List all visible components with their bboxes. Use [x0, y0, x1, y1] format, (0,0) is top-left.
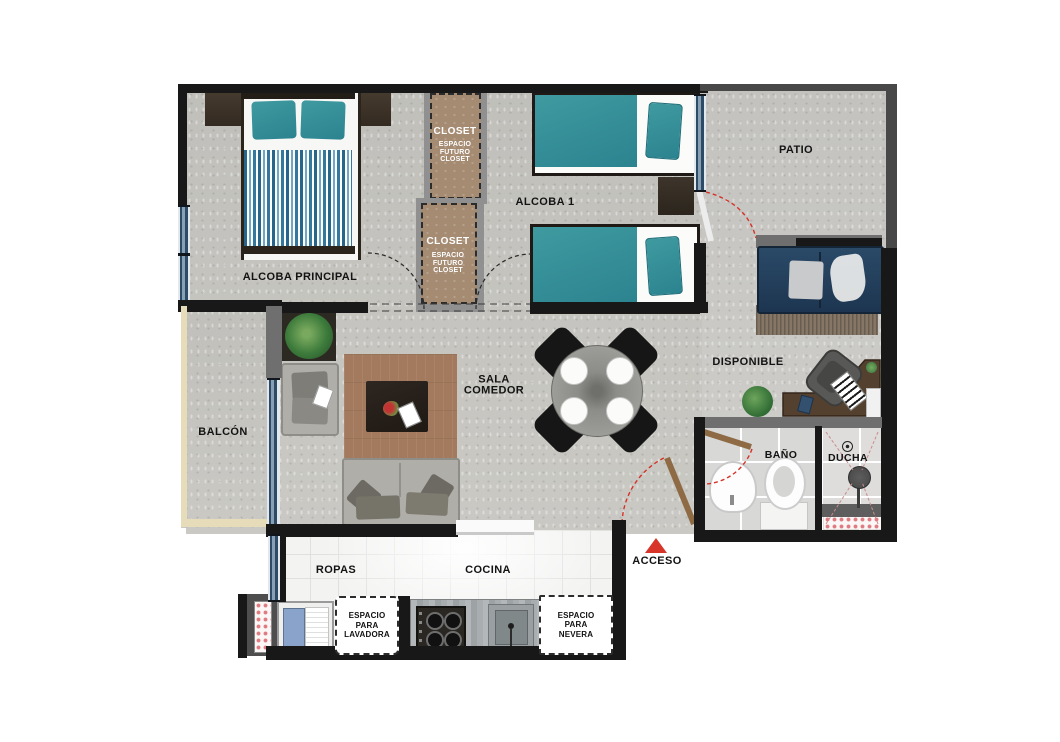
patio-sofa — [757, 246, 884, 314]
kitchen-island-counter — [456, 520, 534, 535]
wall-top — [178, 84, 708, 93]
stove-burner — [426, 612, 444, 630]
room-label-alcoba-1: ALCOBA 1 — [515, 197, 574, 208]
dining-plate — [606, 397, 634, 425]
closet-bottom-subtitle: ESPACIO FUTURO CLOSET — [425, 252, 471, 275]
wall-right — [881, 248, 897, 540]
plant-foliage — [285, 313, 333, 359]
window-alcoba1-patio — [694, 94, 706, 192]
closet-bottom-title: CLOSET — [427, 237, 470, 248]
laundry-basin — [283, 608, 305, 650]
closet-top-title: CLOSET — [434, 127, 477, 138]
wall-top-patio — [700, 84, 897, 91]
washer-space-label: ESPACIO PARA LAVADORA — [341, 611, 393, 640]
wall-sala-kitchen — [266, 524, 458, 537]
wall-balcony-sala — [266, 306, 282, 378]
single-bed-1-pillow — [645, 102, 683, 160]
balcony-sliding-door — [267, 378, 280, 528]
access-arrow-icon — [645, 538, 667, 553]
toilet-bowl-inner — [773, 466, 795, 497]
sofa-cushion-left — [356, 495, 401, 520]
bed-duvet — [244, 150, 352, 246]
room-label-disponible: DISPONIBLE — [712, 357, 783, 368]
room-label-cocina: COCINA — [465, 565, 511, 576]
sofa-back-seam — [399, 463, 401, 497]
fridge-space-label: ESPACIO PARA NEVERA — [551, 611, 601, 640]
room-label-ducha: DUCHA — [828, 453, 868, 464]
shower-icon — [842, 441, 853, 452]
bed-headboard — [241, 92, 355, 99]
toilet-bowl — [764, 457, 806, 510]
wall-bathroom-left — [694, 417, 705, 540]
single-bed-1-blanket — [535, 95, 637, 167]
bed-pillow-left — [251, 100, 296, 140]
double-bed — [241, 92, 361, 260]
wall-bathroom-top — [694, 417, 882, 428]
closet-top-subtitle: ESPACIO FUTURO CLOSET — [432, 141, 478, 164]
stove-burner — [444, 612, 462, 630]
bed-pillow-right — [300, 100, 345, 140]
table-magazine — [397, 401, 421, 428]
wall-laundry-outer — [238, 594, 247, 658]
sofa-cushion-right — [405, 492, 448, 516]
patio-sofa-throw — [828, 253, 868, 303]
room-label-sala-comedor: SALA COMEDOR — [457, 375, 531, 396]
nightstand-left — [205, 93, 244, 126]
desk-papers — [866, 388, 881, 418]
desk-plant-small — [866, 362, 877, 373]
dining-plate — [560, 397, 588, 425]
wall-right-patio — [886, 84, 897, 254]
laundry-window — [268, 534, 280, 602]
wall-bath-shower-divider — [815, 426, 822, 532]
dining-set — [540, 333, 652, 447]
coffee-table — [366, 381, 428, 432]
fridge-space-box: ESPACIO PARA NEVERA — [539, 595, 613, 655]
stove-knobs — [419, 612, 422, 646]
shower-head — [848, 466, 871, 489]
armchair — [281, 363, 339, 436]
nightstand-alcoba1 — [658, 177, 694, 215]
bed-foot-bar — [241, 246, 355, 254]
window-alcoba-principal-2 — [178, 254, 190, 303]
single-bed-2-blanket — [533, 227, 637, 305]
floor-plant-disponible — [742, 386, 773, 417]
dining-plate — [606, 357, 634, 385]
entrance-label: ACCESO — [632, 556, 681, 567]
room-label-bano: BAÑO — [765, 450, 798, 461]
kitchen-faucet-stem — [510, 629, 512, 647]
balcony-rail-bottom — [181, 519, 271, 527]
wall-bedrooms-sala-right — [530, 302, 708, 313]
room-label-alcoba-principal: ALCOBA PRINCIPAL — [243, 272, 358, 283]
wall-kitchen-right — [612, 520, 626, 658]
wall-left-upper — [178, 84, 187, 205]
wall-kitchen-left-strip — [280, 530, 286, 602]
wall-bathroom-bottom — [694, 530, 897, 542]
room-label-ropas: ROPAS — [316, 565, 356, 576]
bathroom-sink — [709, 461, 757, 513]
single-bed-2-pillow — [645, 236, 683, 296]
planter-box — [282, 311, 336, 361]
floor-plan: ESPACIO PARA LAVADORA ESPACIO PARA NEVER… — [0, 0, 1060, 742]
shower-mosaic-strip — [824, 516, 881, 529]
room-label-balcon: BALCÓN — [198, 427, 247, 438]
washer-space-box: ESPACIO PARA LAVADORA — [335, 596, 399, 655]
wall-bedrooms-sala-left — [282, 302, 368, 313]
patio-sofa-pillow — [788, 260, 823, 299]
dining-plate — [560, 357, 588, 385]
single-bed-2 — [530, 224, 700, 314]
living-sofa — [342, 458, 460, 526]
balcony-rail-left — [181, 306, 187, 527]
shower-base — [821, 504, 883, 517]
floor-balcony — [181, 306, 271, 528]
kitchen-sink — [488, 604, 534, 652]
room-label-patio: PATIO — [779, 145, 813, 156]
single-bed-1 — [532, 92, 700, 176]
laundry-washboard — [305, 607, 329, 651]
sink-faucet — [730, 495, 734, 505]
wall-alcoba1-right-lower — [694, 243, 706, 313]
window-alcoba-principal-1 — [178, 205, 190, 255]
